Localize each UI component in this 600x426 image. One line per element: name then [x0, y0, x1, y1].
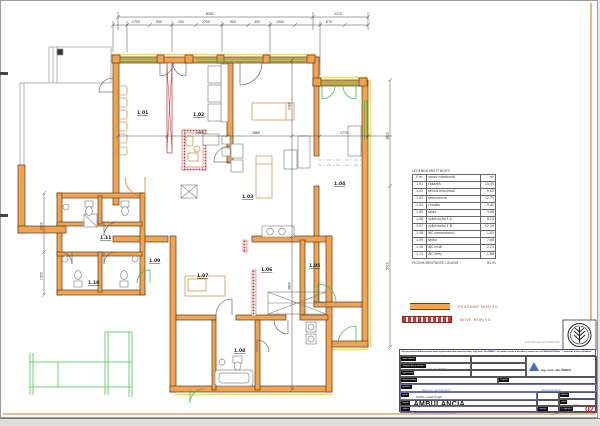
table-row: 1.05sklad3.66 — [413, 209, 496, 216]
svg-text:2170: 2170 — [334, 12, 342, 16]
table-row: 1.06vyšetrovňa 1.28.10 — [413, 216, 496, 223]
svg-text:1.03: 1.03 — [242, 194, 253, 200]
svg-text:350: 350 — [254, 20, 260, 24]
title-block: Táto projektová dokumentácia bola vyprac… — [399, 349, 596, 412]
room-legend: LEGENDA MIESTNOSTÍ č.m.názov miestnostim… — [412, 169, 496, 265]
new-wall-label: NOVÉ MURIVO — [460, 318, 491, 322]
stupen-row: stupeň — [498, 377, 597, 384]
table-row: 1.02denná miestnosť9.62 — [413, 188, 496, 195]
scale-cell: mierka 1:50 — [537, 406, 559, 413]
drawing-number-cell: č. výkresu 02 — [559, 406, 597, 413]
page-bottom-strip — [0, 418, 600, 426]
svg-text:1.04: 1.04 — [334, 181, 345, 187]
svg-text:1.02: 1.02 — [193, 112, 204, 118]
svg-text:8255: 8255 — [206, 12, 214, 16]
svg-text:1.11: 1.11 — [100, 235, 111, 241]
svg-text:2200: 2200 — [40, 222, 44, 230]
svg-text:1.01: 1.01 — [137, 110, 148, 116]
existing-wall-swatch — [410, 303, 450, 310]
svg-text:1750: 1750 — [132, 20, 140, 24]
svg-text:2960: 2960 — [196, 131, 204, 135]
existing-wall-label: PÔVODNÉ MURIVO — [458, 305, 498, 309]
table-row: 1.01čakáreň15.45 — [413, 181, 496, 188]
room-legend-table: č.m.názov miestnostim² 1.01čakáreň15.45 … — [412, 174, 496, 259]
terrace-outline — [20, 47, 111, 228]
new-wall-swatch — [402, 316, 452, 323]
drawing-sheet-viewport: 8255 2170 1750 900 250 2750 900 350 1500… — [0, 0, 600, 426]
table-row: 1.07vyšetrovňa 1.B12.59 — [413, 223, 496, 230]
logo-triangle-icon — [529, 362, 539, 371]
svg-text:1500: 1500 — [276, 20, 284, 24]
miesto-row: miesto stavby Bánovce nad Bebravou — [400, 377, 498, 384]
pergola-grid — [29, 332, 132, 397]
svg-text:1.08: 1.08 — [234, 348, 245, 354]
table-row: 1.03ambulancia12.75 — [413, 195, 496, 202]
svg-text:3800: 3800 — [288, 282, 292, 290]
svg-text:870: 870 — [326, 20, 332, 24]
svg-text:250: 250 — [178, 20, 184, 24]
drawing-title-row: výkres pôdorys 1.NP - navrhovaný stav — [400, 406, 537, 413]
room-legend-title: LEGENDA MIESTNOSTÍ — [412, 169, 496, 173]
architect-logo: ateliér architektúry Ing. arch. Ján ŠIMK… — [526, 356, 597, 377]
investor-row: investor MUDr. Lukáš Krajčí — [400, 384, 597, 392]
wall-legend: PÔVODNÉ MURIVO NOVÉ MURIVO — [402, 303, 522, 329]
author-row: autor návrhu Ing. arch. Ján ŠIMKO — [400, 356, 471, 363]
ramp-hatch — [268, 292, 326, 314]
table-row: 1.08WC zamestnanci1.65 — [413, 230, 496, 237]
svg-text:2390: 2390 — [288, 102, 292, 110]
svg-text:1.06: 1.06 — [261, 267, 272, 273]
date-cell: dátum 2023 — [559, 392, 597, 399]
table-row: 1.09šatňa7.68 — [413, 237, 496, 244]
opening-dashdot — [318, 160, 362, 165]
svg-text:900: 900 — [156, 20, 162, 24]
projektant-row: zodpovedný projektant — [400, 363, 471, 370]
table-row: 1.11WC ženy1.86 — [413, 251, 496, 258]
project-name-row: akcia AMBULANCIA — [400, 392, 537, 400]
svg-text:1.05: 1.05 — [309, 263, 320, 269]
svg-text:5010: 5010 — [386, 262, 390, 270]
svg-text:2750: 2750 — [202, 20, 210, 24]
svg-text:1.09: 1.09 — [149, 258, 160, 264]
svg-text:1.10: 1.10 — [88, 280, 99, 286]
table-row: 1.04chodba9.40 — [413, 202, 496, 209]
svg-text:2860: 2860 — [252, 131, 260, 135]
svg-text:900: 900 — [230, 20, 236, 24]
svg-text:3820: 3820 — [386, 132, 390, 140]
room-legend-total: PLOCHA MIESTNOSTÍ CELKOM84.91 — [412, 261, 496, 265]
table-row: 1.10WC muži2.15 — [413, 244, 496, 251]
svg-text:1770: 1770 — [340, 131, 348, 135]
svg-text:1500: 1500 — [40, 272, 44, 280]
vypracoval-row: vypracoval — [400, 370, 471, 377]
svg-text:1.07: 1.07 — [197, 273, 208, 279]
